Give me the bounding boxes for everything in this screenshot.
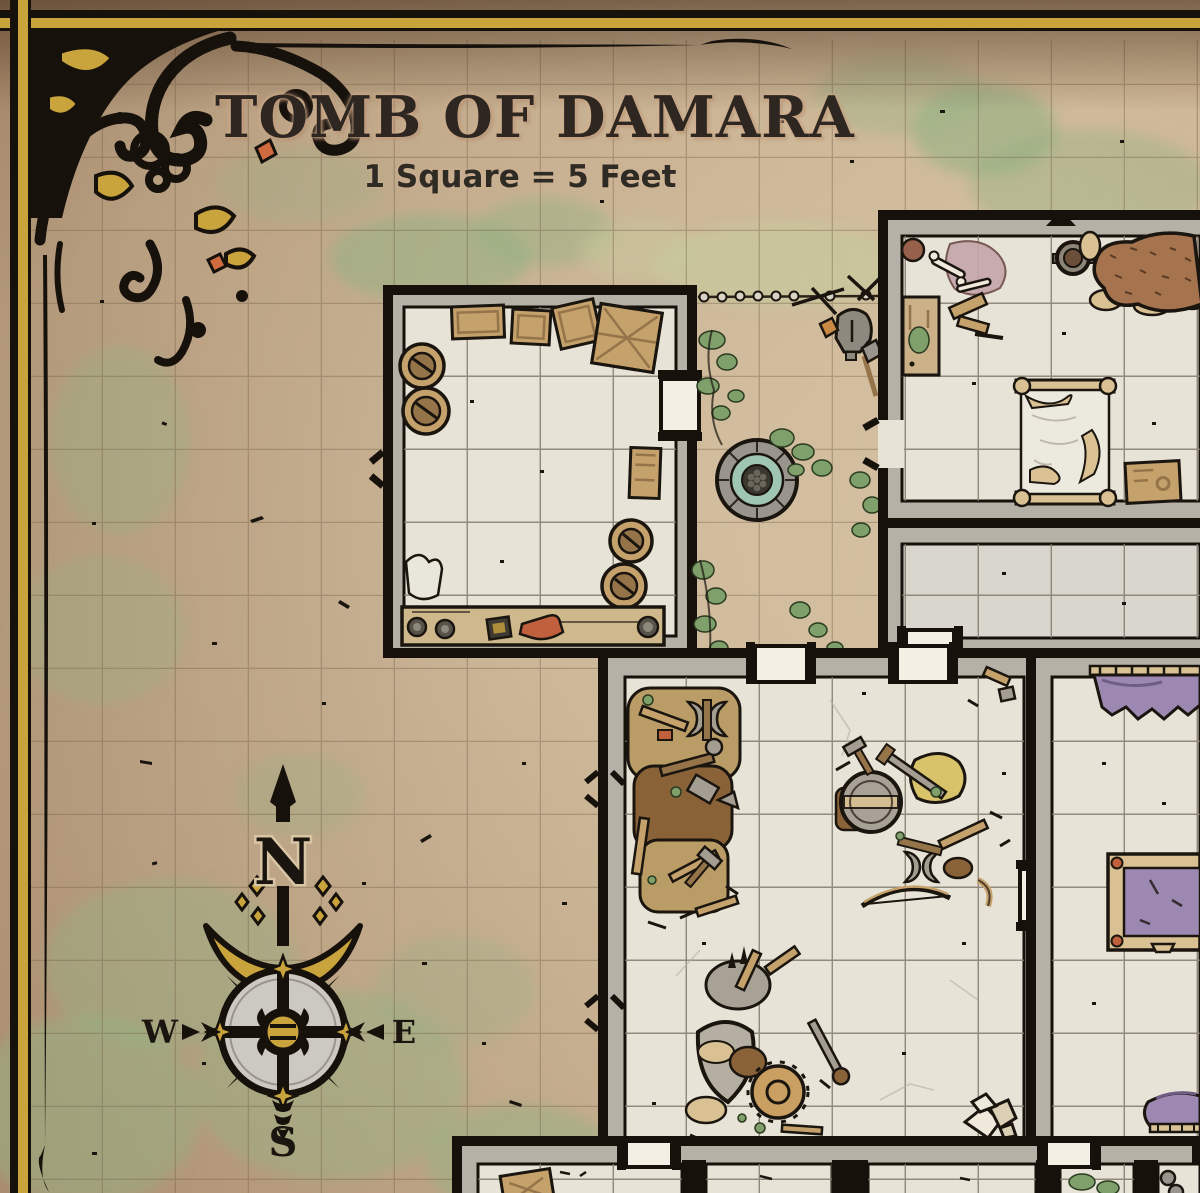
wall-banner: [1090, 666, 1200, 719]
purple-chamber: [1026, 648, 1200, 1168]
storage-room: [371, 285, 702, 658]
stone-orb: [1169, 1185, 1183, 1193]
compass-west-label: W: [141, 1013, 179, 1051]
cells-door-east: [1037, 1138, 1101, 1170]
sack: [406, 555, 442, 599]
battle-map: N W E S: [0, 0, 1200, 1193]
bed: [1014, 378, 1116, 506]
small-crate: [1125, 461, 1181, 504]
large-crate: [592, 304, 663, 373]
round-shield: [841, 772, 901, 832]
cabinet: [629, 447, 661, 498]
empty-corridor-room: [878, 518, 1200, 666]
compass-south-label: S: [269, 1119, 298, 1166]
bench: [903, 297, 939, 375]
map-canvas: N W E S Tomb of Damara 1 Square = 5 Feet: [0, 0, 1200, 1193]
bedchamber: [864, 210, 1200, 533]
purple-divan: [1108, 854, 1200, 952]
storage-door-east: [658, 370, 702, 441]
draped-cloth-rack: [1144, 1093, 1200, 1132]
south-cells: [452, 1136, 1200, 1193]
compass-east-label: E: [392, 1013, 416, 1051]
stone-well: [717, 440, 797, 520]
cells-door-west: [617, 1138, 681, 1170]
workbench: [402, 607, 664, 645]
stone-orb: [1161, 1171, 1175, 1185]
compass-hub: [266, 1015, 300, 1049]
hall-door-ne: [888, 642, 958, 684]
hall-door-nw: [746, 642, 816, 684]
debris-pile-west: [628, 688, 740, 928]
great-hall: [586, 642, 1056, 1168]
compass-north-label: N: [254, 825, 313, 900]
fur-carpet: [1080, 232, 1200, 315]
